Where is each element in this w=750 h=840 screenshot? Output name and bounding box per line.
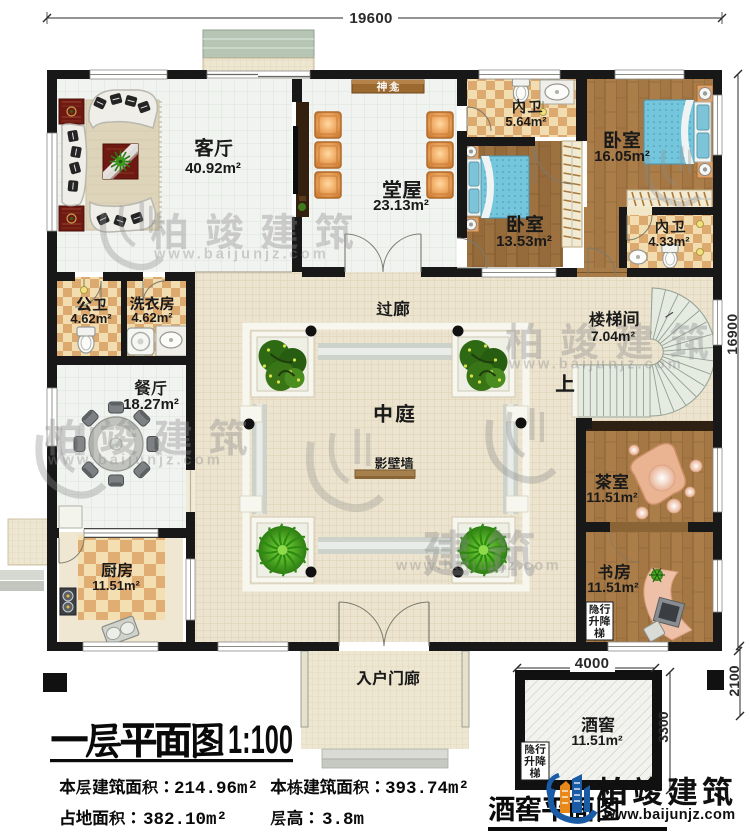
svg-text:4000: 4000	[575, 655, 610, 672]
svg-text:www.baijunjz.com: www.baijunjz.com	[603, 807, 736, 823]
svg-text:3.8m: 3.8m	[322, 810, 364, 830]
svg-text:www.baijunjz.com: www.baijunjz.com	[395, 558, 561, 574]
svg-text:5.64m²: 5.64m²	[505, 114, 547, 129]
svg-text:13.53m²: 13.53m²	[496, 233, 552, 250]
svg-text:16900: 16900	[724, 313, 740, 354]
svg-text:3300: 3300	[655, 711, 671, 742]
svg-text:40.92m²: 40.92m²	[185, 160, 241, 177]
svg-text:16.05m²: 16.05m²	[594, 148, 650, 165]
svg-text:4.62m²: 4.62m²	[131, 310, 173, 325]
svg-text:www.baijunjz.com: www.baijunjz.com	[508, 357, 684, 373]
svg-text:382.10m²: 382.10m²	[143, 810, 227, 830]
svg-text:4.33m²: 4.33m²	[648, 234, 690, 249]
svg-text:23.13m²: 23.13m²	[373, 197, 429, 214]
svg-text:11.51m²: 11.51m²	[92, 578, 140, 593]
svg-text:4.62m²: 4.62m²	[70, 311, 112, 326]
svg-text:2100: 2100	[726, 665, 742, 696]
svg-text:393.74m²: 393.74m²	[385, 779, 469, 799]
svg-text:7.04m²: 7.04m²	[591, 328, 636, 344]
svg-text:19600: 19600	[349, 10, 392, 27]
svg-text:11.51m²: 11.51m²	[587, 579, 639, 595]
svg-text:www.baijunjz.com: www.baijunjz.com	[153, 247, 329, 263]
svg-text:11.51m²: 11.51m²	[571, 732, 623, 748]
svg-text:11.51m²: 11.51m²	[586, 489, 638, 505]
svg-text:www.baijunjz.com: www.baijunjz.com	[47, 453, 223, 469]
svg-text:18.27m²: 18.27m²	[123, 396, 179, 413]
svg-text:1:100: 1:100	[228, 718, 293, 762]
svg-text:214.96m²: 214.96m²	[174, 779, 258, 799]
